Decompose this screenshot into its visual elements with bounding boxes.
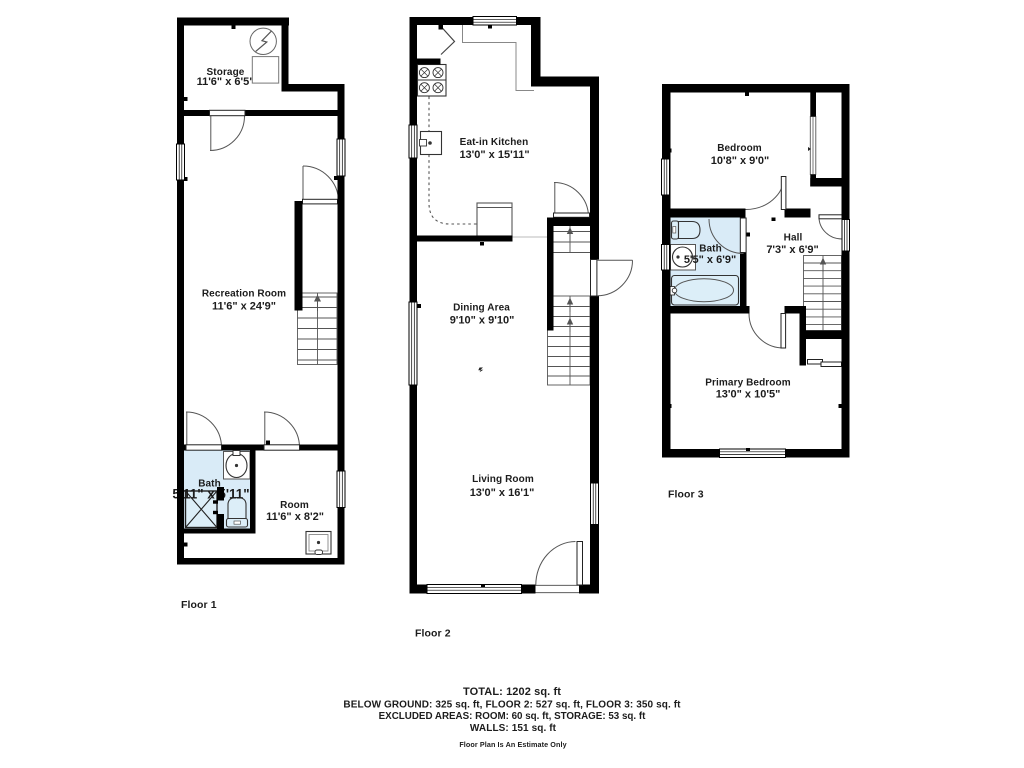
svg-text:13'0" x 10'5": 13'0" x 10'5" <box>716 389 781 401</box>
svg-text:Primary Bedroom: Primary Bedroom <box>705 378 790 389</box>
svg-text:7'3" x 6'9": 7'3" x 6'9" <box>766 244 818 256</box>
svg-text:WALLS: 151 sq. ft: WALLS: 151 sq. ft <box>470 723 557 734</box>
svg-text:Recreation Room: Recreation Room <box>202 289 286 300</box>
svg-text:TOTAL: 1202 sq. ft: TOTAL: 1202 sq. ft <box>463 686 561 698</box>
svg-text:13'0" x 16'1": 13'0" x 16'1" <box>470 487 535 499</box>
svg-text:Floor 3: Floor 3 <box>668 489 704 501</box>
svg-text:Floor 1: Floor 1 <box>181 599 217 611</box>
svg-text:EXCLUDED AREAS: ROOM: 60 sq. f: EXCLUDED AREAS: ROOM: 60 sq. ft, STORAGE… <box>379 711 646 722</box>
svg-text:11'6" x 8'2": 11'6" x 8'2" <box>266 511 324 523</box>
svg-text:Floor Plan Is An Estimate Only: Floor Plan Is An Estimate Only <box>459 740 566 749</box>
svg-text:Hall: Hall <box>784 233 803 244</box>
svg-text:Bedroom: Bedroom <box>717 143 762 154</box>
svg-text:10'8" x 9'0": 10'8" x 9'0" <box>711 155 769 167</box>
svg-text:BELOW GROUND: 325 sq. ft, FLOO: BELOW GROUND: 325 sq. ft, FLOOR 2: 527 s… <box>343 700 681 711</box>
svg-text:Dining Area: Dining Area <box>453 303 510 314</box>
svg-text:Floor 2: Floor 2 <box>415 628 451 640</box>
svg-text:9'10" x 9'10": 9'10" x 9'10" <box>450 315 515 327</box>
svg-text:5'5" x 6'9": 5'5" x 6'9" <box>684 254 736 266</box>
svg-text:13'0" x 15'11": 13'0" x 15'11" <box>459 149 529 161</box>
svg-text:Living Room: Living Room <box>472 474 534 485</box>
svg-text:11'6" x 6'5": 11'6" x 6'5" <box>197 76 255 88</box>
svg-text:Bath: Bath <box>699 244 722 255</box>
svg-text:Eat-in Kitchen: Eat-in Kitchen <box>460 137 529 148</box>
svg-text:11'6" x 24'9": 11'6" x 24'9" <box>212 301 276 313</box>
svg-text:Room: Room <box>280 500 309 511</box>
